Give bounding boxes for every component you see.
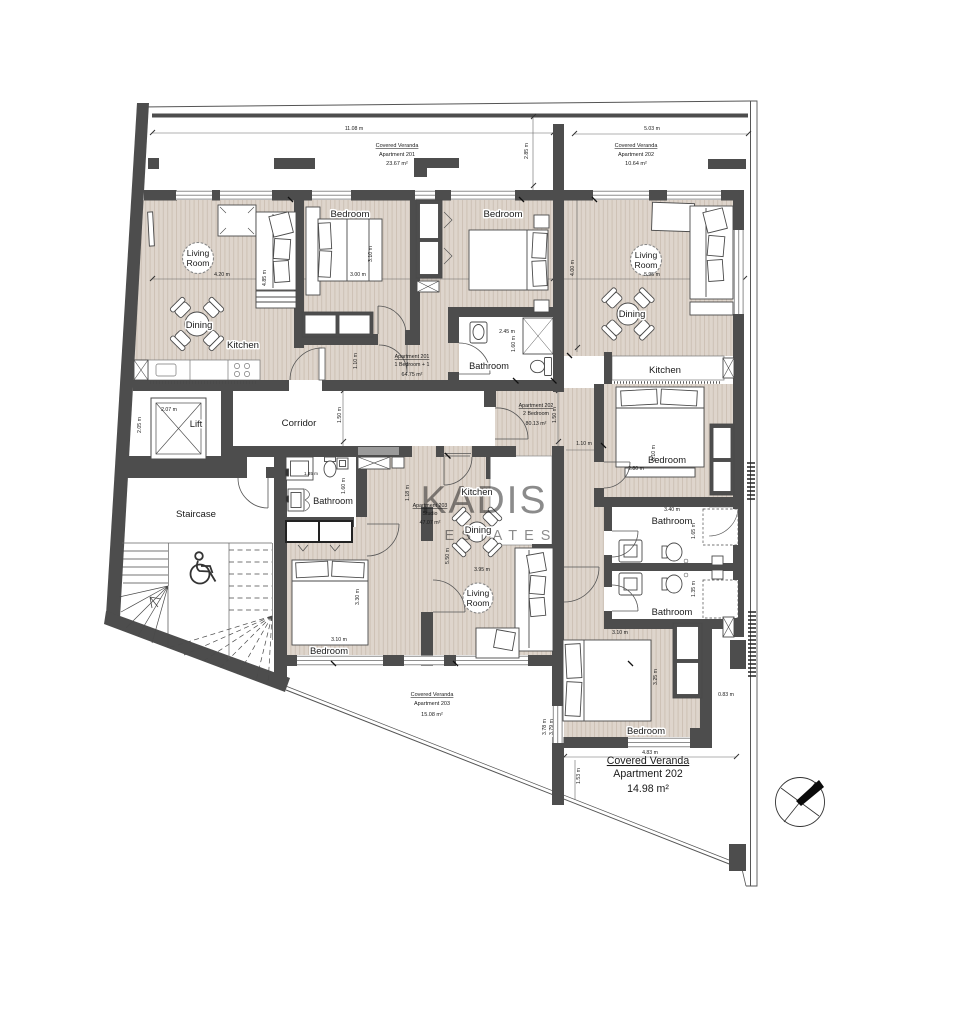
svg-text:2.85 m: 2.85 m <box>524 143 530 159</box>
svg-text:Lift: Lift <box>190 418 203 429</box>
svg-text:4.20 m: 4.20 m <box>214 272 230 278</box>
svg-text:2.45 m: 2.45 m <box>499 329 515 335</box>
svg-text:1 Bedroom + 1: 1 Bedroom + 1 <box>395 362 430 368</box>
svg-text:23.67 m²: 23.67 m² <box>386 161 408 167</box>
svg-text:Dining: Dining <box>186 319 213 330</box>
svg-text:3.79 m: 3.79 m <box>549 719 555 735</box>
svg-text:Bathroom: Bathroom <box>469 361 509 371</box>
svg-text:3.10 m: 3.10 m <box>368 246 374 262</box>
svg-text:11.08 m: 11.08 m <box>345 126 363 132</box>
svg-text:Apartment 203: Apartment 203 <box>414 701 450 707</box>
svg-text:Kitchen: Kitchen <box>649 365 681 376</box>
svg-text:3.10 m: 3.10 m <box>331 637 347 643</box>
svg-text:1.65 m: 1.65 m <box>691 523 697 539</box>
svg-text:1.18 m: 1.18 m <box>405 485 411 501</box>
svg-text:1.60 m: 1.60 m <box>511 336 517 352</box>
svg-text:Living: Living <box>187 248 210 258</box>
svg-text:Corridor: Corridor <box>282 418 317 429</box>
svg-text:Dining: Dining <box>619 308 646 319</box>
svg-text:Covered Veranda: Covered Veranda <box>615 143 659 149</box>
svg-text:3.30 m: 3.30 m <box>355 589 361 605</box>
svg-text:5.50 m: 5.50 m <box>445 548 451 564</box>
svg-text:Room: Room <box>635 260 658 270</box>
svg-text:Dining: Dining <box>465 524 492 535</box>
svg-text:Living: Living <box>467 588 490 598</box>
svg-text:5.03 m: 5.03 m <box>644 126 660 132</box>
svg-text:3.78 m: 3.78 m <box>542 719 548 735</box>
svg-text:Bedroom: Bedroom <box>310 645 348 656</box>
svg-text:ESTATES: ESTATES <box>445 528 558 544</box>
svg-text:1.53 m: 1.53 m <box>576 768 582 784</box>
svg-text:47.07 m²: 47.07 m² <box>420 520 441 526</box>
svg-text:80.13 m²: 80.13 m² <box>526 421 547 427</box>
svg-text:Living: Living <box>635 250 658 260</box>
svg-text:2 Bedroom: 2 Bedroom <box>523 411 549 417</box>
svg-text:Apartment 201: Apartment 201 <box>379 152 415 158</box>
svg-text:1.10 m: 1.10 m <box>576 441 592 447</box>
svg-text:15.08 m²: 15.08 m² <box>421 712 443 718</box>
svg-text:1.10 m: 1.10 m <box>353 353 359 369</box>
svg-text:64.75 m²: 64.75 m² <box>402 372 423 378</box>
svg-text:1.85 m: 1.85 m <box>304 471 318 476</box>
svg-text:1.50 m: 1.50 m <box>552 407 558 423</box>
svg-text:3.95 m: 3.95 m <box>474 567 490 573</box>
svg-text:Covered Veranda: Covered Veranda <box>607 755 690 767</box>
svg-text:1.35 m: 1.35 m <box>691 581 697 597</box>
svg-text:Bedroom: Bedroom <box>627 725 665 736</box>
svg-text:Apartment 202: Apartment 202 <box>613 768 683 780</box>
svg-text:3.10 m: 3.10 m <box>651 445 657 461</box>
svg-text:Bathroom: Bathroom <box>652 606 693 617</box>
svg-text:3.00 m: 3.00 m <box>350 272 366 278</box>
svg-text:3.10 m: 3.10 m <box>612 630 628 636</box>
svg-text:1.60 m: 1.60 m <box>341 478 347 494</box>
svg-text:4.85 m: 4.85 m <box>262 270 268 286</box>
svg-text:Covered Veranda: Covered Veranda <box>411 692 455 698</box>
svg-text:4.00 m: 4.00 m <box>570 260 576 276</box>
svg-text:Studio: Studio <box>422 511 437 517</box>
svg-text:0.83 m: 0.83 m <box>718 692 734 698</box>
svg-text:2.07 m: 2.07 m <box>161 407 177 413</box>
svg-text:Apartment 201: Apartment 201 <box>395 354 430 360</box>
svg-text:Apartment 202: Apartment 202 <box>519 403 554 409</box>
svg-text:Room: Room <box>187 258 210 268</box>
svg-text:10.64 m²: 10.64 m² <box>625 161 647 167</box>
svg-text:Bedroom: Bedroom <box>331 209 370 220</box>
svg-text:Bathroom: Bathroom <box>652 515 693 526</box>
svg-text:3.25 m: 3.25 m <box>653 669 659 685</box>
svg-text:Kitchen: Kitchen <box>227 340 259 351</box>
svg-text:Apartment 202: Apartment 202 <box>618 152 654 158</box>
svg-text:Covered Veranda: Covered Veranda <box>376 143 420 149</box>
svg-text:2.80 m: 2.80 m <box>628 466 644 472</box>
svg-text:Kitchen: Kitchen <box>461 486 492 497</box>
svg-text:Room: Room <box>467 598 490 608</box>
svg-text:3.40 m: 3.40 m <box>664 507 680 513</box>
svg-text:2.05 m: 2.05 m <box>137 417 143 433</box>
svg-text:1.50 m: 1.50 m <box>337 407 343 423</box>
svg-text:Bedroom: Bedroom <box>484 209 523 220</box>
svg-text:14.98 m²: 14.98 m² <box>627 783 669 795</box>
svg-text:4.83 m: 4.83 m <box>642 750 658 756</box>
svg-text:Apartment 203: Apartment 203 <box>413 503 448 509</box>
svg-text:5.95 m: 5.95 m <box>644 272 660 278</box>
svg-text:Staircase: Staircase <box>176 509 216 520</box>
svg-text:Bathroom: Bathroom <box>313 496 353 506</box>
